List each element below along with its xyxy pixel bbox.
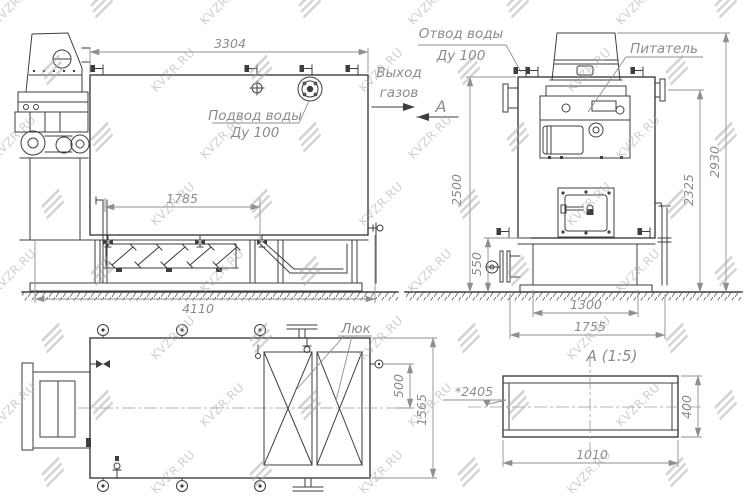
gas-outlet-flange [503, 84, 518, 112]
dim-text-1010: 1010 [576, 447, 608, 462]
dim-text-3304: 3304 [214, 36, 246, 51]
ash-pit-front [260, 244, 347, 273]
burner-mount-side [486, 251, 520, 282]
fire-door [558, 188, 614, 237]
section-cut-mark: А [417, 97, 458, 121]
duct-section [503, 376, 678, 437]
water-inlet-flange [298, 77, 322, 101]
drawing-sheet: 3304 1785 4110 Подвод воды Ду 100 [0, 0, 750, 500]
dim-section-height: 400 [679, 376, 702, 437]
dim-text-2500: 2500 [449, 174, 464, 206]
dim-text-550: 550 [469, 252, 484, 276]
section-mark-text: А [435, 97, 447, 116]
dim-section-width: 1010 [503, 440, 678, 467]
dim-length-top: 3304 [90, 36, 368, 73]
gas-flow-arrow-icon [372, 103, 415, 111]
feeder-text: Питатель [630, 41, 698, 57]
water-outlet-label: Отвод воды Ду 100 [418, 26, 521, 72]
grate-front [104, 244, 240, 272]
dim-text-2325: 2325 [681, 174, 696, 206]
dim-offset-500: 500 [383, 364, 414, 408]
front-view: 3304 1785 4110 Подвод воды Ду 100 [15, 33, 398, 316]
axis-height-callout: *2405 [443, 384, 506, 407]
dim-height-flange: 2325 [668, 90, 704, 292]
downpipe-side [655, 203, 671, 285]
dim-text-1565: 1565 [414, 394, 429, 426]
dim-text-1755: 1755 [574, 319, 606, 334]
water-outlet-flange [655, 79, 665, 101]
center-mark-icon [250, 81, 264, 95]
side-view: 2500 550 1300 1755 2325 2930 [372, 26, 742, 339]
plan-fittings-bottom-edge [98, 456, 324, 492]
top-view: Люк 500 1565 [22, 321, 437, 492]
fuel-hopper-front [26, 33, 82, 92]
gas-exit-line2: газов [380, 85, 419, 101]
section-view: А (1:5) *2405 1010 400 [443, 347, 702, 467]
water-inlet-line2: Ду 100 [230, 125, 280, 141]
drawing-linework: 3304 1785 4110 Подвод воды Ду 100 [0, 0, 750, 500]
dim-text-400: 400 [679, 395, 694, 419]
dim-text-2405: *2405 [455, 384, 493, 399]
door-lock-icon [587, 205, 594, 215]
boiler-body-front [90, 75, 368, 235]
section-cut-arrow-icon [417, 113, 429, 121]
water-outlet-line2: Ду 100 [436, 48, 486, 64]
plan-fittings-top-edge [98, 325, 318, 359]
water-inlet-line1: Подвод воды [208, 108, 302, 124]
hatch-text: Люк [340, 321, 372, 337]
dim-text-500: 500 [391, 374, 406, 398]
roof-valves-front [91, 65, 359, 75]
gas-exit-line1: Выход [376, 65, 422, 81]
drain-valves-front [103, 223, 383, 283]
roof-valves-side [514, 67, 644, 77]
dim-length-base: 4110 [35, 235, 375, 316]
gas-exit-label: Выход газов [372, 65, 422, 111]
dim-text-2930: 2930 [707, 146, 722, 178]
fuel-hopper-side [550, 33, 622, 80]
dim-text-1785: 1785 [166, 191, 198, 206]
feeder-mechanism-front [15, 48, 90, 240]
hatch-panels-plan [264, 352, 362, 465]
feeder-plan [22, 363, 91, 450]
plan-side-valve [90, 360, 383, 368]
section-title: А (1:5) [586, 347, 638, 365]
dim-text-4110: 4110 [182, 301, 214, 316]
water-outlet-line1: Отвод воды [419, 26, 504, 42]
dim-text-1300: 1300 [570, 297, 602, 312]
water-inlet-label: Подвод воды Ду 100 [208, 101, 309, 141]
feeder-mechanism-side [540, 86, 630, 159]
